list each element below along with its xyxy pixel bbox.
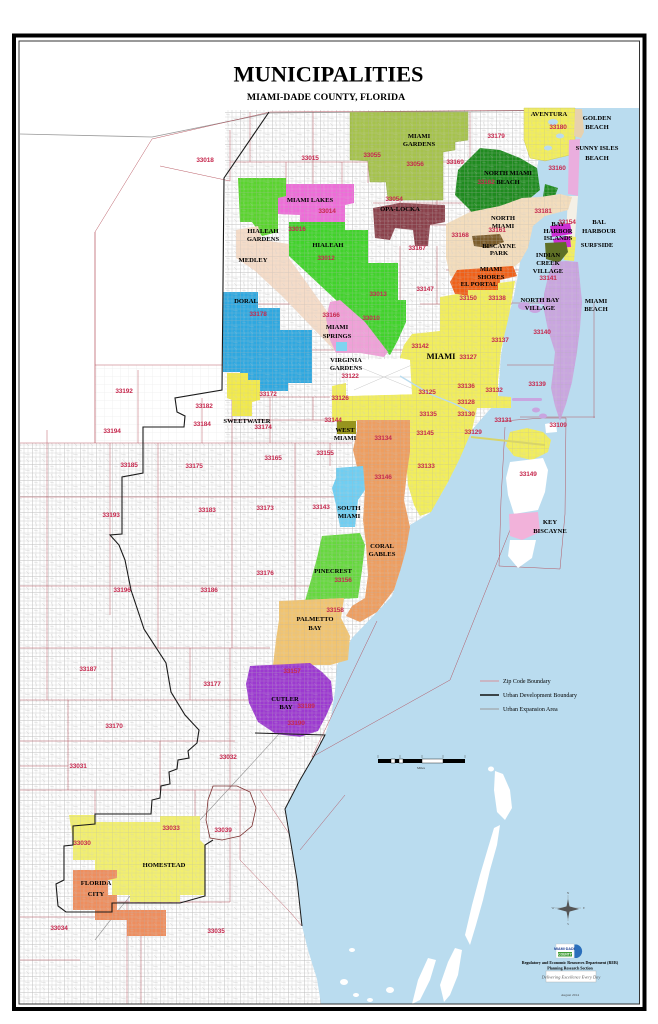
svg-text:WEST: WEST [335, 427, 355, 434]
svg-text:33186: 33186 [200, 587, 218, 594]
svg-text:NORTH MIAMI: NORTH MIAMI [484, 170, 532, 177]
svg-text:33039: 33039 [214, 827, 232, 834]
svg-text:INDIAN: INDIAN [536, 252, 560, 259]
svg-text:MIAMI·DADE: MIAMI·DADE [554, 947, 577, 951]
svg-text:33128: 33128 [457, 399, 475, 406]
svg-text:33013: 33013 [369, 291, 387, 298]
svg-text:33016: 33016 [288, 226, 306, 233]
svg-text:33035: 33035 [207, 928, 225, 935]
svg-text:33182: 33182 [195, 403, 213, 410]
svg-text:CITY: CITY [88, 891, 105, 898]
svg-text:GARDENS: GARDENS [330, 365, 363, 372]
svg-text:BEACH: BEACH [496, 179, 520, 186]
svg-text:33154: 33154 [558, 219, 576, 226]
svg-text:PALMETTO: PALMETTO [296, 616, 333, 623]
svg-text:VILLAGE: VILLAGE [533, 268, 564, 275]
svg-text:BEACH: BEACH [585, 124, 609, 131]
svg-text:33150: 33150 [459, 295, 477, 302]
svg-text:33176: 33176 [256, 570, 274, 577]
svg-text:33165: 33165 [264, 455, 282, 462]
svg-text:GARDENS: GARDENS [403, 141, 436, 148]
svg-text:33055: 33055 [363, 152, 381, 159]
svg-text:33137: 33137 [491, 337, 509, 344]
svg-text:33180: 33180 [549, 124, 567, 131]
svg-text:VIRGINIA: VIRGINIA [330, 357, 362, 364]
svg-text:COUNTY: COUNTY [558, 953, 572, 957]
svg-text:33144: 33144 [324, 417, 342, 424]
svg-text:33192: 33192 [115, 388, 133, 395]
svg-text:33018: 33018 [196, 157, 214, 164]
svg-text:33132: 33132 [485, 387, 503, 394]
svg-text:33156: 33156 [334, 577, 352, 584]
svg-text:SPRINGS: SPRINGS [323, 333, 352, 340]
svg-text:CREEK: CREEK [536, 260, 560, 267]
svg-text:33177: 33177 [203, 681, 221, 688]
svg-text:BISCAYNE: BISCAYNE [533, 528, 567, 535]
svg-text:33190: 33190 [287, 720, 305, 727]
svg-text:33122: 33122 [341, 373, 359, 380]
svg-text:GOLDEN: GOLDEN [583, 115, 612, 122]
svg-text:33155: 33155 [316, 450, 334, 457]
svg-text:33010: 33010 [362, 315, 380, 322]
svg-text:AVENTURA: AVENTURA [531, 111, 568, 118]
svg-text:VILLAGE: VILLAGE [525, 305, 556, 312]
svg-text:MIAMI: MIAMI [480, 266, 503, 273]
svg-text:33184: 33184 [193, 421, 211, 428]
svg-text:33143: 33143 [312, 504, 330, 511]
svg-text:ISLANDS: ISLANDS [544, 235, 573, 242]
svg-text:CUTLER: CUTLER [271, 696, 299, 703]
svg-text:Regulatory and Economic Resour: Regulatory and Economic Resources Depart… [522, 960, 619, 965]
svg-text:HARBOR: HARBOR [544, 228, 573, 235]
svg-text:33172: 33172 [259, 391, 277, 398]
svg-text:BAY: BAY [308, 625, 322, 632]
svg-text:FLORIDA: FLORIDA [81, 880, 112, 887]
svg-text:33179: 33179 [487, 133, 505, 140]
svg-text:EL PORTAL: EL PORTAL [461, 281, 498, 288]
svg-text:BEACH: BEACH [584, 306, 608, 313]
svg-text:BEACH: BEACH [585, 155, 609, 162]
svg-text:33127: 33127 [459, 354, 477, 361]
svg-text:Zip Code Boundary: Zip Code Boundary [503, 679, 551, 685]
svg-text:33012: 33012 [317, 255, 335, 262]
svg-text:33189: 33189 [297, 703, 315, 710]
svg-text:Miles: Miles [417, 766, 426, 770]
svg-text:33033: 33033 [162, 825, 180, 832]
svg-text:33147: 33147 [416, 286, 434, 293]
svg-text:33054: 33054 [385, 196, 403, 203]
svg-text:33032: 33032 [219, 754, 237, 761]
svg-text:Urban Expansion Area: Urban Expansion Area [503, 707, 558, 713]
svg-text:HOMESTEAD: HOMESTEAD [143, 862, 186, 869]
svg-text:33030: 33030 [73, 840, 91, 847]
svg-text:33194: 33194 [103, 428, 121, 435]
svg-text:33130: 33130 [457, 411, 475, 418]
svg-text:33125: 33125 [418, 389, 436, 396]
svg-text:33196: 33196 [113, 587, 131, 594]
svg-text:MIAMI: MIAMI [326, 324, 349, 331]
svg-text:33133: 33133 [417, 463, 435, 470]
svg-text:MUNICIPALITIES: MUNICIPALITIES [234, 62, 424, 87]
svg-text:33170: 33170 [105, 723, 123, 730]
svg-text:GARDENS: GARDENS [247, 236, 280, 243]
svg-text:W: W [551, 906, 554, 910]
svg-text:33131: 33131 [494, 417, 512, 424]
svg-text:PINECREST: PINECREST [314, 568, 352, 575]
svg-text:33141: 33141 [539, 275, 557, 282]
svg-text:33193: 33193 [102, 512, 120, 519]
svg-text:33178: 33178 [249, 311, 267, 318]
svg-text:BAY: BAY [279, 704, 293, 711]
svg-text:33185: 33185 [120, 462, 138, 469]
svg-text:SURFSIDE: SURFSIDE [581, 242, 614, 249]
svg-text:DORAL: DORAL [234, 298, 258, 305]
svg-text:33142: 33142 [411, 343, 429, 350]
svg-text:33056: 33056 [406, 161, 424, 168]
svg-text:33169: 33169 [446, 159, 464, 166]
svg-text:33135: 33135 [419, 411, 437, 418]
svg-text:33160: 33160 [548, 165, 566, 172]
svg-text:33183: 33183 [198, 507, 216, 514]
svg-text:33031: 33031 [69, 763, 87, 770]
svg-text:33134: 33134 [374, 435, 392, 442]
svg-text:OPA-LOCKA: OPA-LOCKA [380, 206, 420, 213]
svg-text:33136: 33136 [457, 383, 475, 390]
svg-text:August 2014: August 2014 [561, 993, 579, 997]
svg-text:33126: 33126 [331, 395, 349, 402]
svg-text:Planning Research Section: Planning Research Section [547, 966, 593, 971]
svg-text:33166: 33166 [322, 312, 340, 319]
svg-text:BAL: BAL [592, 219, 606, 226]
svg-text:NORTH BAY: NORTH BAY [521, 297, 560, 304]
svg-text:33138: 33138 [488, 295, 506, 302]
svg-text:33015: 33015 [301, 155, 319, 162]
svg-text:E: E [583, 906, 585, 910]
svg-text:33157: 33157 [283, 668, 301, 675]
svg-text:HIALEAH: HIALEAH [247, 228, 279, 235]
svg-text:MIAMI: MIAMI [427, 351, 456, 361]
svg-text:KEY: KEY [543, 519, 558, 526]
svg-text:HIALEAH: HIALEAH [312, 242, 344, 249]
svg-text:MIAMI-DADE COUNTY, FLORIDA: MIAMI-DADE COUNTY, FLORIDA [247, 92, 405, 103]
svg-text:33162: 33162 [477, 179, 495, 186]
svg-text:33167: 33167 [408, 245, 426, 252]
svg-text:MEDLEY: MEDLEY [239, 257, 268, 264]
svg-text:33014: 33014 [318, 208, 336, 215]
svg-text:MIAMI: MIAMI [585, 298, 608, 305]
svg-text:SOUTH: SOUTH [337, 505, 361, 512]
svg-text:SUNNY ISLES: SUNNY ISLES [576, 145, 619, 152]
svg-text:S: S [567, 922, 569, 926]
svg-text:PARK: PARK [490, 250, 509, 257]
svg-text:33149: 33149 [519, 471, 537, 478]
svg-text:MIAMI: MIAMI [334, 435, 357, 442]
svg-text:BISCAYNE: BISCAYNE [482, 243, 516, 250]
svg-text:33175: 33175 [185, 463, 203, 470]
svg-text:NORTH: NORTH [491, 215, 516, 222]
svg-text:Delivering Excellence Every Da: Delivering Excellence Every Day [541, 975, 601, 980]
svg-text:33129: 33129 [464, 429, 482, 436]
svg-text:GABLES: GABLES [369, 551, 396, 558]
svg-text:SHORES: SHORES [478, 274, 505, 281]
svg-text:33181: 33181 [534, 208, 552, 215]
svg-text:Urban Development Boundary: Urban Development Boundary [503, 693, 577, 699]
svg-text:33161: 33161 [488, 227, 506, 234]
svg-text:33140: 33140 [533, 329, 551, 336]
svg-text:MIAMI: MIAMI [338, 513, 361, 520]
svg-text:33187: 33187 [79, 666, 97, 673]
svg-text:33168: 33168 [451, 232, 469, 239]
svg-text:33173: 33173 [256, 505, 274, 512]
svg-text:33109: 33109 [549, 422, 567, 429]
svg-text:33174: 33174 [254, 424, 272, 431]
svg-text:33145: 33145 [416, 430, 434, 437]
svg-text:33158: 33158 [326, 607, 344, 614]
svg-text:33146: 33146 [374, 474, 392, 481]
svg-text:MIAMI LAKES: MIAMI LAKES [287, 197, 334, 204]
svg-text:33034: 33034 [50, 925, 68, 932]
svg-text:MIAMI: MIAMI [408, 133, 431, 140]
svg-text:HARBOUR: HARBOUR [582, 228, 616, 235]
svg-text:CORAL: CORAL [370, 543, 394, 550]
svg-text:33139: 33139 [528, 381, 546, 388]
